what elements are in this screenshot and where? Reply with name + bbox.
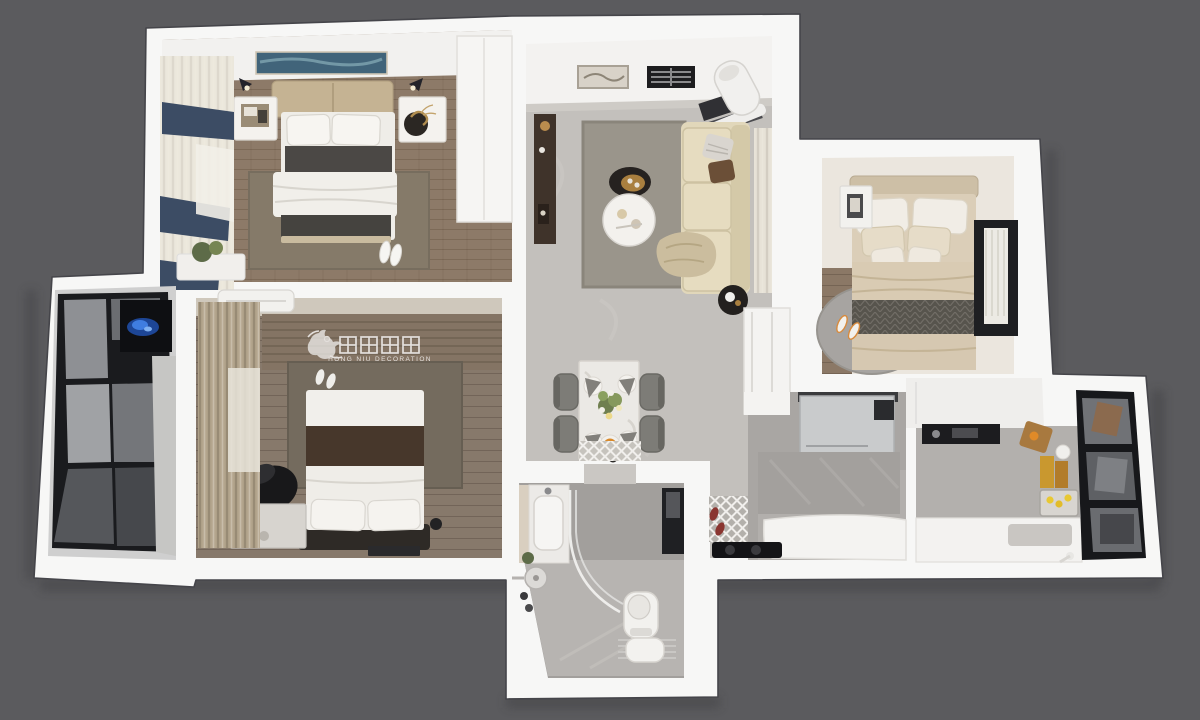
svg-text:HONG NIU DECORATION: HONG NIU DECORATION — [328, 356, 432, 363]
